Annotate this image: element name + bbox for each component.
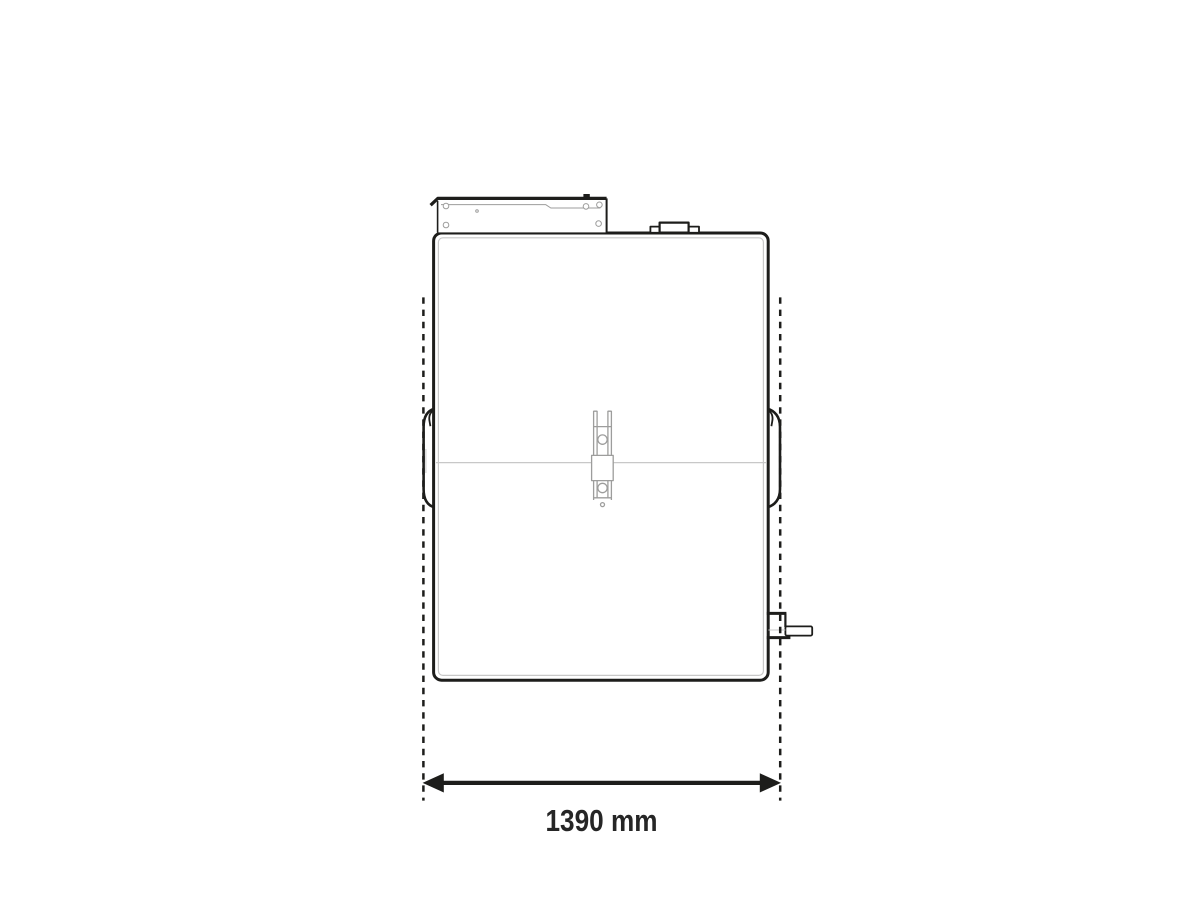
- fitting-raised-cap: [660, 223, 689, 233]
- bracket-center-block: [592, 455, 614, 480]
- outlet-stub: [785, 626, 812, 635]
- top-fitting: [650, 223, 699, 233]
- lid-screw: [596, 221, 602, 227]
- lid-face: [438, 198, 607, 232]
- lid-tab: [583, 194, 589, 198]
- arrowhead-right-icon: [760, 773, 781, 792]
- dimension-label: 1390 mm: [546, 803, 658, 838]
- lid-screw: [443, 222, 449, 228]
- outlet-pipe: [767, 613, 812, 637]
- top-lid: [431, 194, 607, 233]
- tank-side-view-drawing: 1390 mm: [0, 0, 1201, 915]
- lid-screw: [597, 202, 603, 208]
- bracket-hole-upper: [598, 435, 607, 444]
- lid-screw: [583, 204, 589, 210]
- lid-screw: [443, 203, 449, 209]
- bracket-hole-lower: [598, 483, 607, 492]
- technical-drawing-page: 1390 mm: [0, 0, 1201, 915]
- drawing-root: 1390 mm: [423, 194, 813, 838]
- arrowhead-left-icon: [423, 773, 444, 792]
- dimension-arrow: [423, 773, 781, 792]
